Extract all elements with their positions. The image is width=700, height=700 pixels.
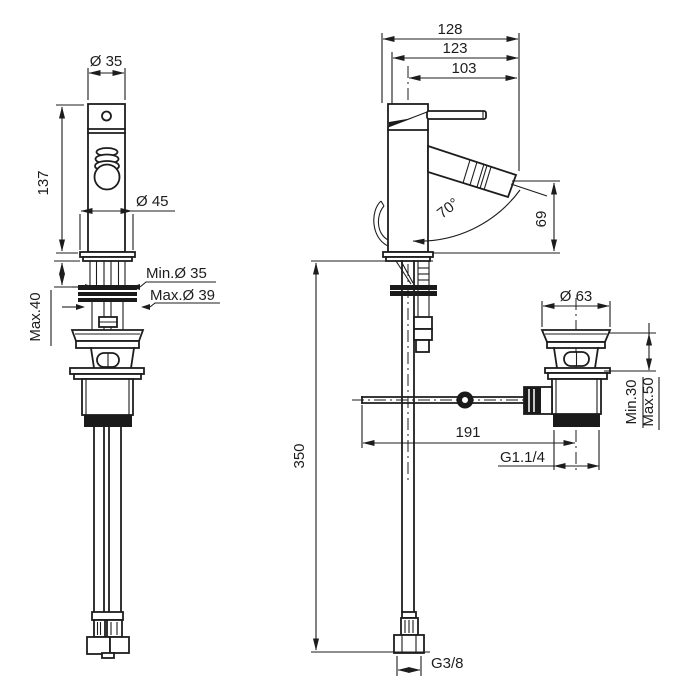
- drain-thread-front: [84, 415, 132, 427]
- dim-label-base-diameter: Ø 45: [136, 193, 169, 210]
- dim-label-supply-thread: G3/8: [431, 655, 464, 672]
- mounting-and-hose-side: [390, 261, 437, 653]
- faucet-body-side: [311, 104, 560, 261]
- dim-label-spout-reach: 103: [451, 60, 476, 77]
- side-view: 128 123 103 70° 69 350 191 Ø 63: [291, 21, 659, 676]
- drain-assembly-front: [70, 330, 144, 427]
- handle-knob-front: [95, 148, 120, 190]
- hose-nut-right: [110, 637, 129, 653]
- hose-nut-left: [87, 637, 110, 654]
- dim-label-hole-max: Max.Ø 39: [150, 287, 215, 304]
- faucet-body-front: [80, 104, 135, 261]
- dim-label-total-depth: 128: [437, 21, 462, 38]
- drain-thread-side: [553, 414, 600, 427]
- dim-label-rod-reach: 191: [455, 424, 480, 441]
- dim-label-waste-clamp-max: Max.50: [640, 377, 657, 426]
- dim-label-body-height: 137: [35, 170, 52, 195]
- supply-nut-side: [394, 635, 424, 653]
- dim-label-spout-height: 69: [533, 211, 550, 228]
- dim-label-waste-clamp-min: Min.30: [623, 379, 640, 424]
- technical-drawing-page: Ø 35 137 Ø 45 Min.Ø 35 Max.Ø 39: [0, 0, 700, 700]
- dim-label-top-diameter: Ø 35: [90, 53, 123, 70]
- dim-label-hole-min: Min.Ø 35: [146, 265, 207, 282]
- dim-label-spout-angle: 70°: [434, 195, 462, 222]
- spout-side: [428, 146, 547, 197]
- set-screw-front: [102, 112, 111, 121]
- dim-label-hose-drop: 350: [291, 443, 308, 468]
- dim-label-waste-thread: G1.1/4: [500, 449, 545, 466]
- bidet-mixer-drawing: Ø 35 137 Ø 45 Min.Ø 35 Max.Ø 39: [0, 0, 700, 700]
- drain-assembly-side: [524, 298, 610, 474]
- front-view: Ø 35 137 Ø 45 Min.Ø 35 Max.Ø 39: [27, 53, 220, 658]
- lever-handle-side: [427, 111, 486, 119]
- mounting-shank-front: [78, 261, 137, 330]
- dim-label-handle-depth: 123: [442, 40, 467, 57]
- supply-hoses-front: [87, 427, 129, 658]
- dim-label-waste-flange-diameter: Ø 63: [560, 288, 593, 305]
- dim-label-deck-thickness: Max.40: [27, 292, 44, 341]
